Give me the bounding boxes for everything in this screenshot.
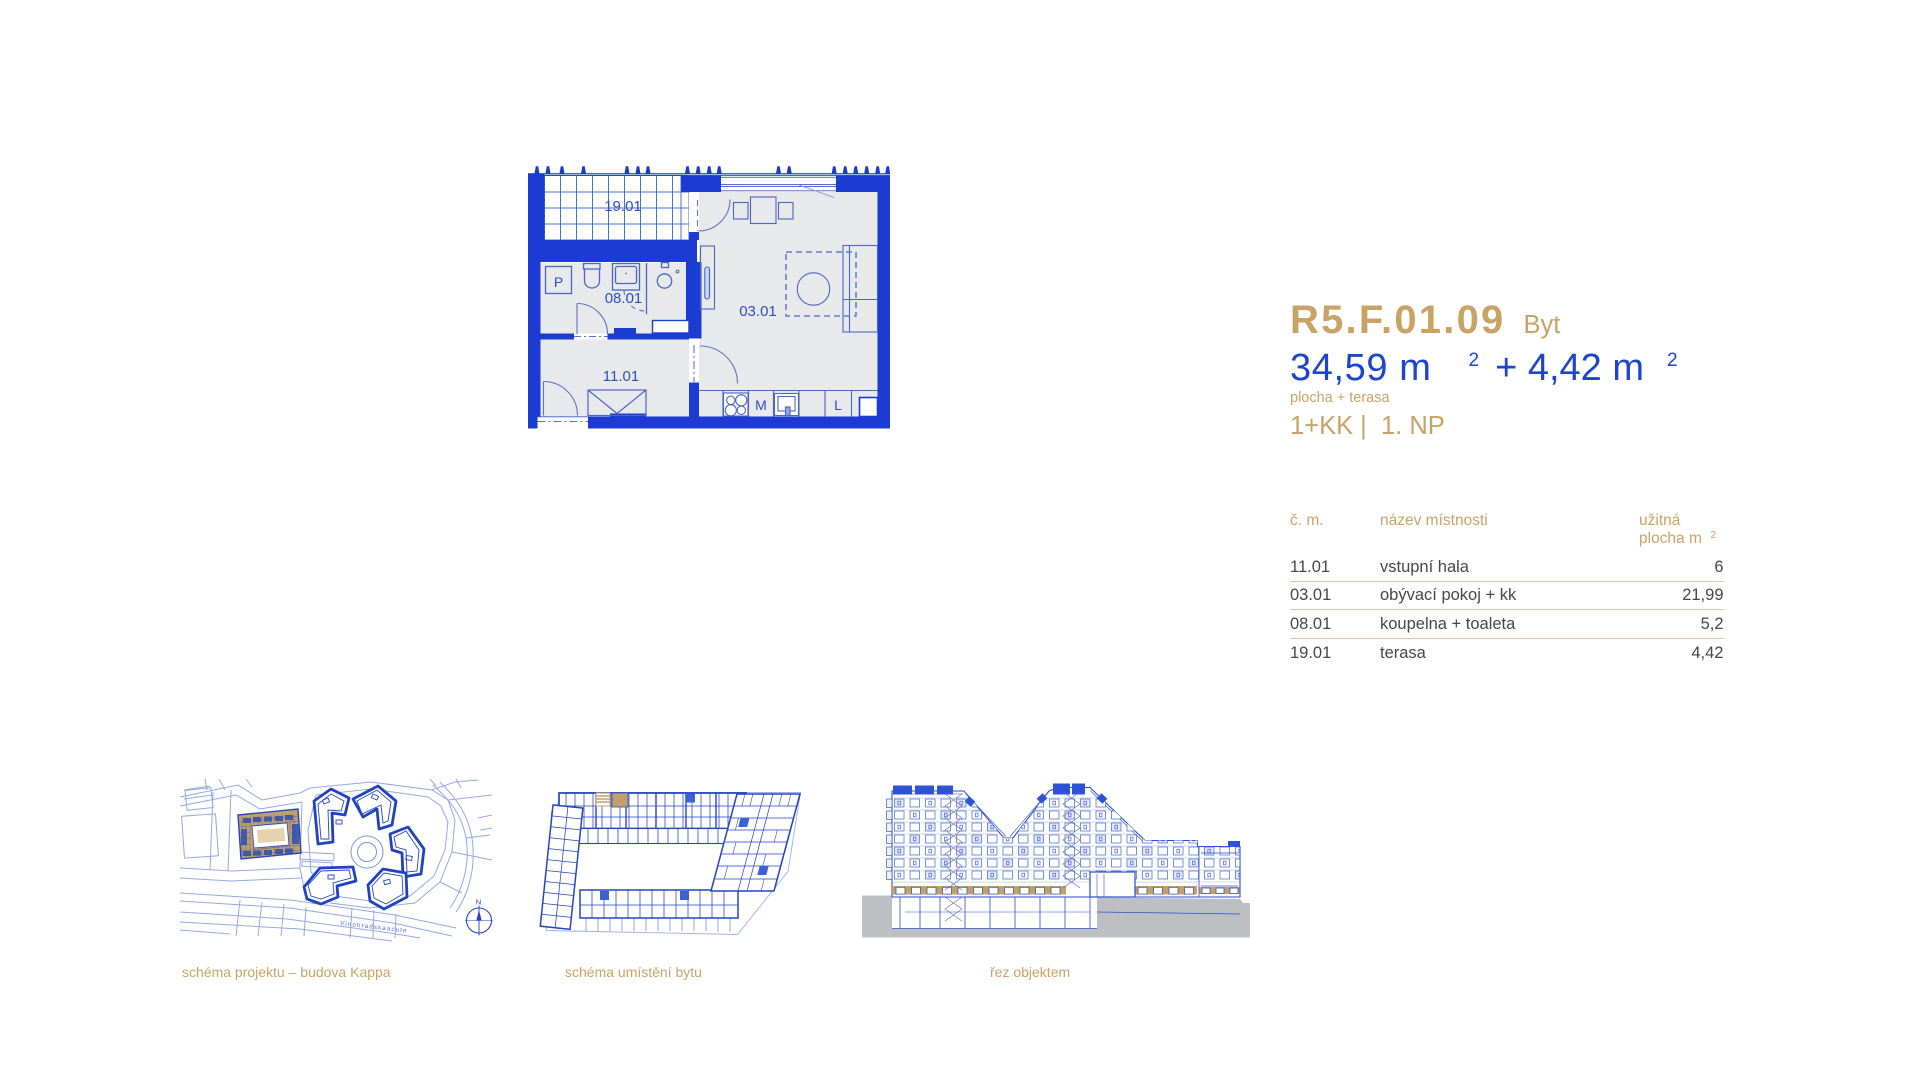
svg-text:11.01: 11.01 [603, 368, 639, 385]
svg-text:P: P [554, 274, 563, 290]
svg-text:L: L [834, 397, 842, 413]
svg-text:03.01: 03.01 [739, 303, 777, 320]
svg-text:N: N [476, 898, 481, 907]
svg-text:M: M [755, 397, 767, 413]
svg-text:08.01: 08.01 [605, 290, 643, 307]
svg-text:19.01: 19.01 [604, 198, 642, 215]
